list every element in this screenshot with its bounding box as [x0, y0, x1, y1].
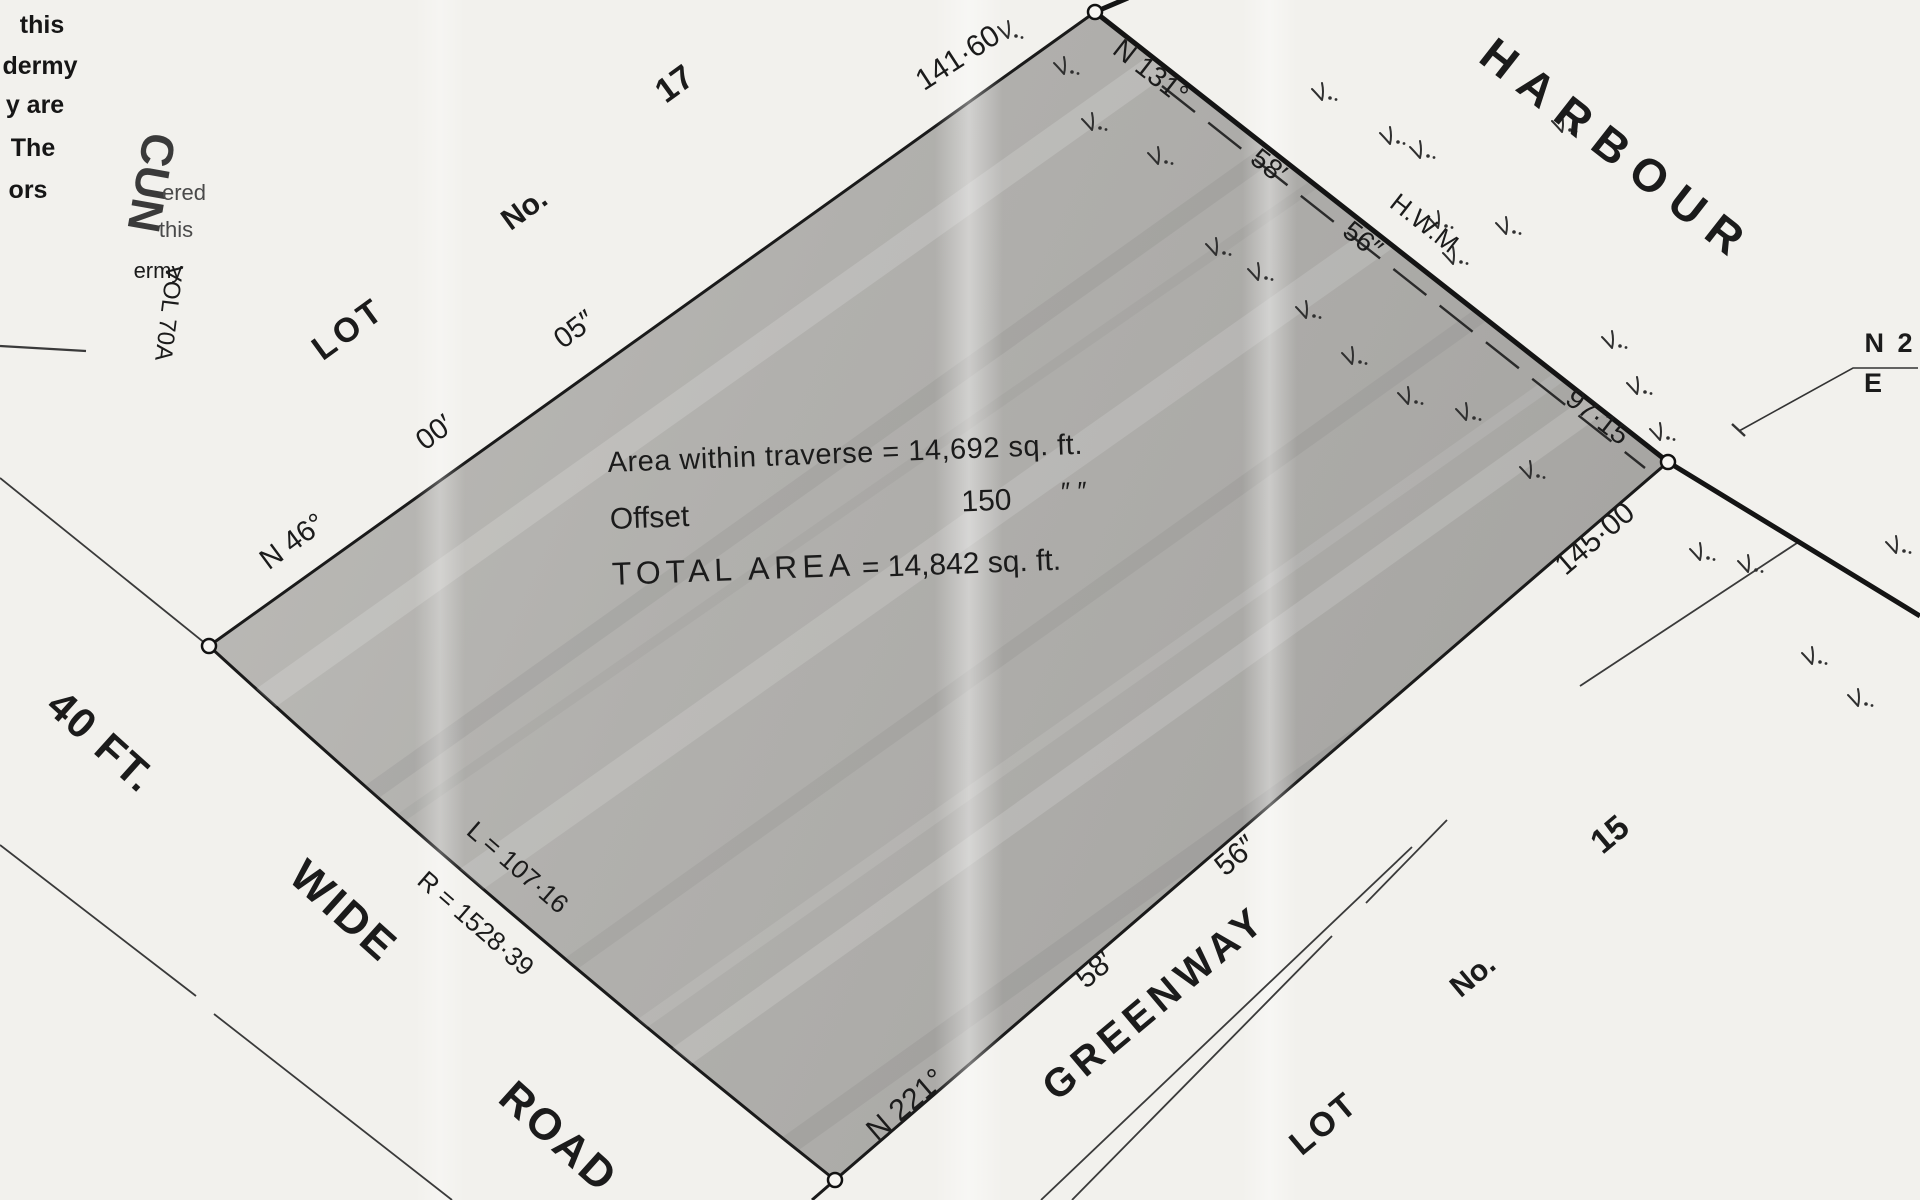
- paper-crease: [415, 0, 465, 1200]
- margin-text-fragment: ors: [9, 176, 48, 204]
- right-bearing-n2: N 2: [1864, 328, 1915, 358]
- corner-marker: [202, 639, 216, 653]
- corner-marker: [1661, 455, 1675, 469]
- corner-marker: [1088, 5, 1102, 19]
- margin-text-fragment: this: [20, 11, 64, 39]
- margin-text-fragment: The: [11, 134, 56, 162]
- survey-plan-sheet: this dermy y are The ors CUN ered this e…: [0, 0, 1920, 1200]
- margin-text-fragment: dermy: [2, 52, 77, 80]
- stamp-text: ered: [162, 180, 206, 205]
- margin-text-fragment: y are: [6, 91, 64, 119]
- survey-plan-drawing: this dermy y are The ors CUN ered this e…: [0, 0, 1920, 1200]
- offset-value: 150: [961, 484, 1012, 519]
- offset-label: Offset: [609, 500, 690, 536]
- stamp-text: this: [159, 217, 193, 242]
- offset-ditto-marks: ″ ″: [1061, 476, 1088, 507]
- right-bearing-e: E: [1864, 368, 1882, 398]
- corner-marker: [828, 1173, 842, 1187]
- paper-crease: [935, 0, 1003, 1200]
